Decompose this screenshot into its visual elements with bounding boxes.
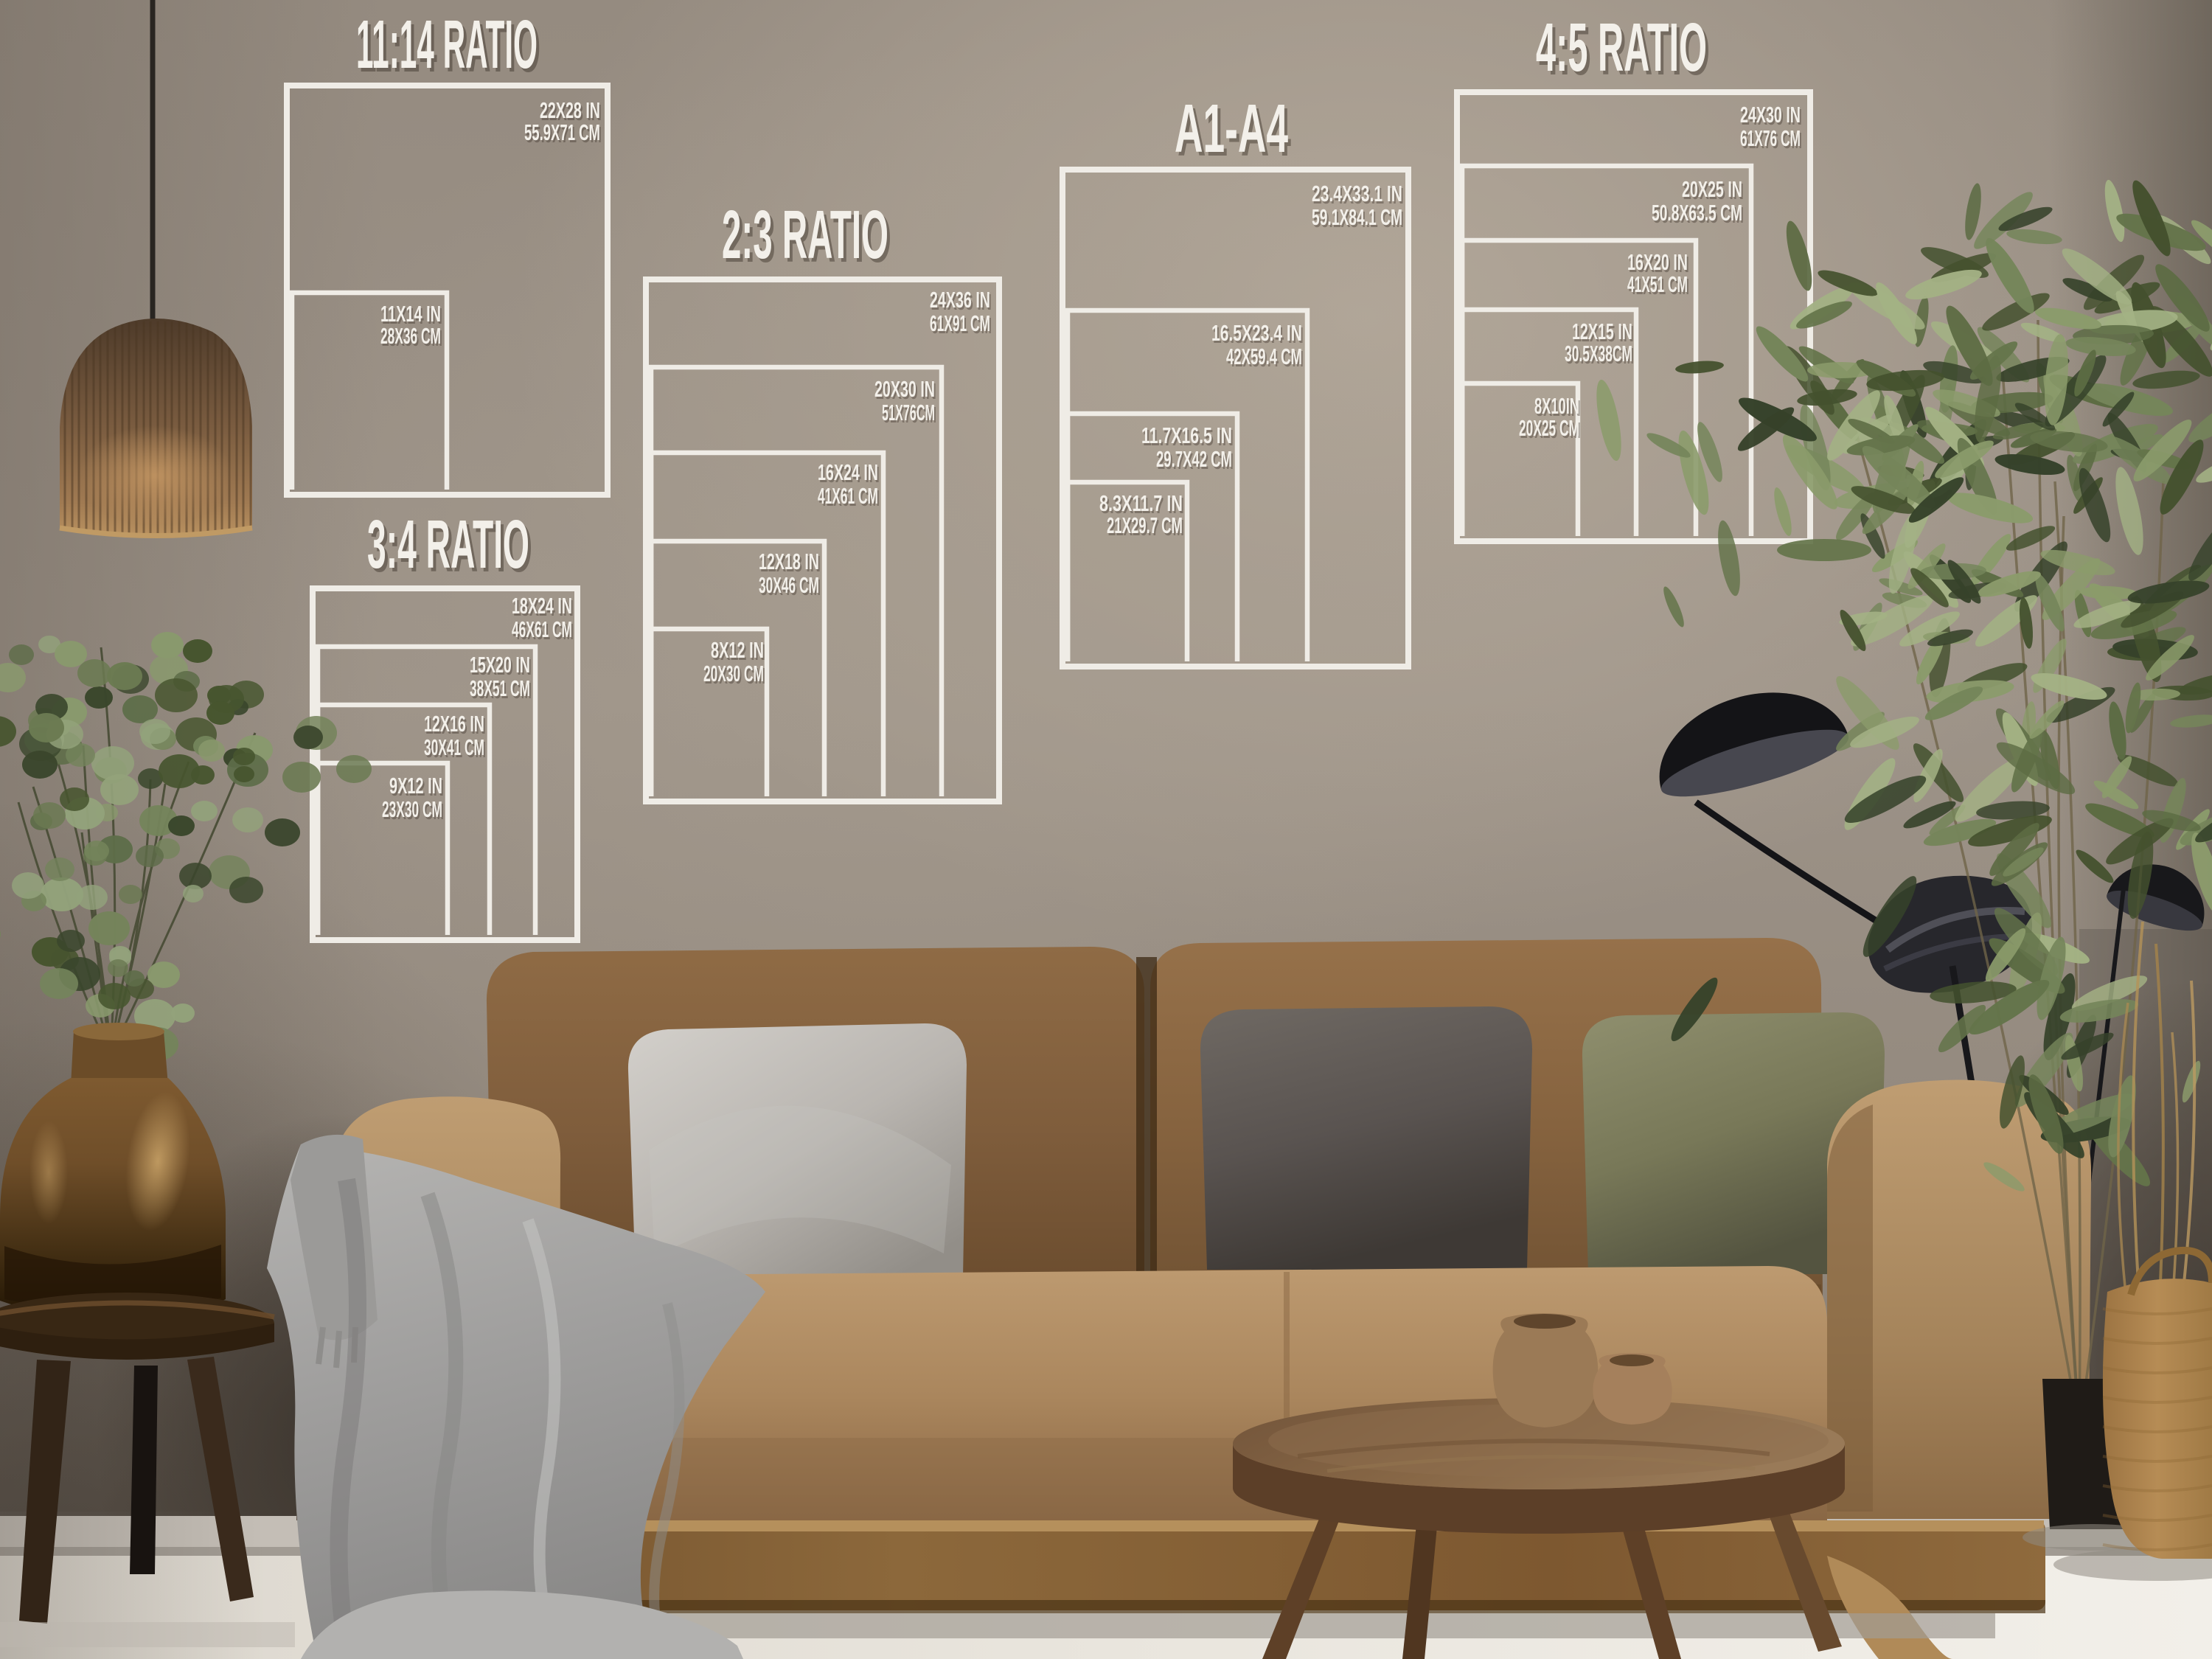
svg-text:51X76CM: 51X76CM [882, 400, 935, 425]
svg-text:2:3 RATIO: 2:3 RATIO [722, 196, 888, 273]
svg-text:4:5 RATIO: 4:5 RATIO [1536, 9, 1707, 86]
svg-text:20X25 IN: 20X25 IN [1682, 176, 1742, 202]
svg-text:46X61 CM: 46X61 CM [512, 616, 572, 642]
svg-text:30X41 CM: 30X41 CM [424, 734, 484, 760]
svg-text:61X91 CM: 61X91 CM [930, 310, 990, 336]
svg-text:29.7X42 CM: 29.7X42 CM [1156, 446, 1232, 472]
svg-text:21X29.7 CM: 21X29.7 CM [1107, 512, 1183, 538]
svg-text:30.5X38CM: 30.5X38CM [1565, 341, 1632, 366]
svg-text:30X46 CM: 30X46 CM [759, 572, 819, 598]
svg-text:24X36 IN: 24X36 IN [930, 287, 990, 313]
svg-text:8X12 IN: 8X12 IN [711, 637, 764, 663]
svg-text:55.9X71 CM: 55.9X71 CM [524, 119, 600, 145]
svg-text:20X30 IN: 20X30 IN [874, 376, 935, 402]
svg-text:24X30 IN: 24X30 IN [1740, 102, 1801, 128]
svg-text:12X16 IN: 12X16 IN [424, 711, 484, 737]
svg-text:18X24 IN: 18X24 IN [512, 593, 572, 619]
svg-text:61X76 CM: 61X76 CM [1740, 125, 1801, 151]
svg-text:12X18 IN: 12X18 IN [759, 549, 819, 574]
svg-text:50.8X63.5 CM: 50.8X63.5 CM [1652, 200, 1742, 226]
svg-text:3:4 RATIO: 3:4 RATIO [367, 506, 529, 582]
svg-text:15X20 IN: 15X20 IN [470, 652, 530, 678]
svg-text:23.4X33.1 IN: 23.4X33.1 IN [1312, 181, 1402, 206]
svg-text:11.7X16.5 IN: 11.7X16.5 IN [1141, 422, 1232, 448]
svg-text:28X36 CM: 28X36 CM [380, 323, 441, 349]
svg-text:42X59.4 CM: 42X59.4 CM [1226, 344, 1302, 369]
svg-text:11:14 RATIO: 11:14 RATIO [356, 6, 538, 83]
svg-text:41X61 CM: 41X61 CM [818, 483, 878, 509]
svg-text:20X25 CM: 20X25 CM [1519, 415, 1579, 441]
svg-text:A1-A4: A1-A4 [1175, 90, 1288, 167]
svg-text:16.5X23.4 IN: 16.5X23.4 IN [1211, 320, 1302, 346]
svg-text:9X12 IN: 9X12 IN [389, 773, 442, 799]
svg-text:16X24 IN: 16X24 IN [818, 459, 878, 485]
svg-text:41X51 CM: 41X51 CM [1627, 271, 1688, 297]
svg-text:23X30 CM: 23X30 CM [382, 796, 442, 822]
svg-text:59.1X84.1 CM: 59.1X84.1 CM [1312, 204, 1402, 230]
svg-text:20X30 CM: 20X30 CM [703, 661, 764, 686]
svg-text:38X51 CM: 38X51 CM [470, 675, 530, 701]
